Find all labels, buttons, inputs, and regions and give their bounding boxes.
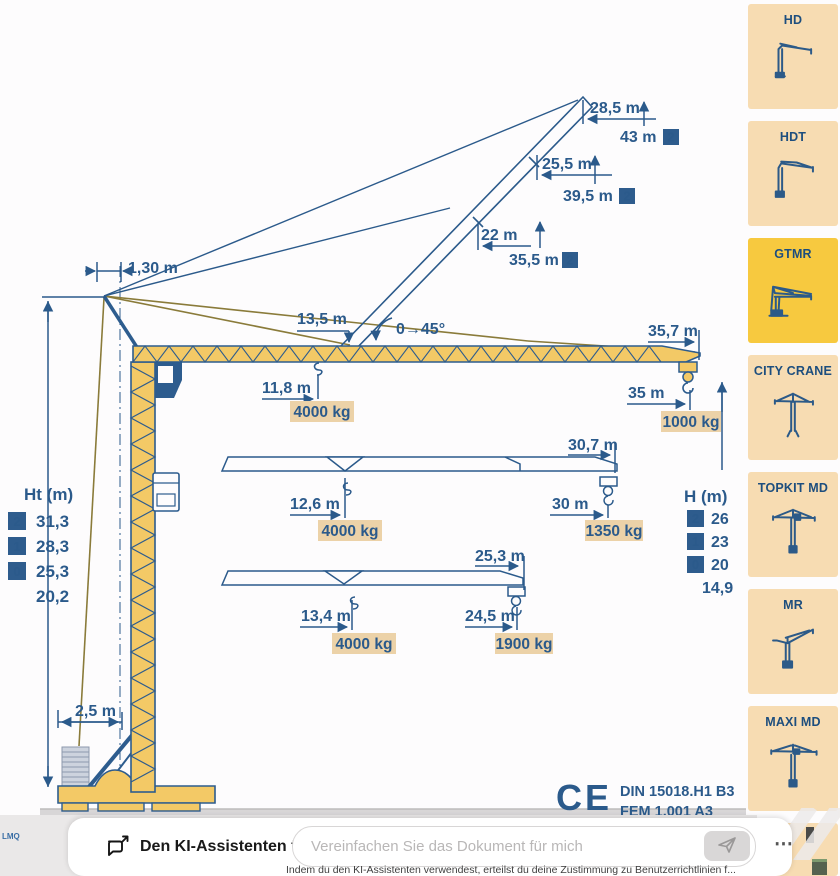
svg-text:2: 2 bbox=[566, 253, 573, 268]
load-4000-a: 4000 kg bbox=[294, 404, 351, 421]
svg-text:14,9: 14,9 bbox=[702, 580, 733, 597]
svg-text:H (m): H (m) bbox=[684, 487, 727, 506]
dim-tip-25-3: 25,3 m bbox=[475, 548, 525, 565]
page-edge-label: LMQ bbox=[2, 832, 20, 841]
sidebar-item-label: MAXI MD bbox=[748, 706, 838, 729]
ht-table: Ht (m) 2 31,3 1 28,3 0 25,3 20,2 bbox=[8, 485, 73, 606]
svg-text:2: 2 bbox=[692, 511, 699, 526]
svg-text:23: 23 bbox=[711, 534, 729, 551]
dim-jib-root: 13,5 m bbox=[297, 311, 347, 328]
dim-apex-offset: 1,30 m bbox=[128, 260, 178, 277]
raised-jib-45 bbox=[104, 97, 592, 355]
dim-radius-25-5: 25,5 m bbox=[542, 156, 592, 173]
dim-tip-30-7: 30,7 m bbox=[568, 437, 618, 454]
assistant-input-wrap bbox=[292, 826, 756, 867]
assistant-panel: Den KI-Assistenten fragen ⋯ Indem du den… bbox=[68, 818, 792, 876]
chat-assistant-icon bbox=[106, 835, 130, 859]
sidebar-item-mr[interactable]: MR bbox=[748, 589, 838, 694]
crane-icon-hdt bbox=[764, 148, 822, 206]
sidebar-item-city-crane[interactable]: CITY CRANE bbox=[748, 355, 838, 460]
dim-height-43: 43 m bbox=[620, 129, 656, 146]
sidebar-item-label: TOPKIT MD bbox=[748, 472, 838, 495]
svg-text:2: 2 bbox=[13, 514, 20, 529]
svg-text:0: 0 bbox=[13, 564, 20, 579]
svg-text:0: 0 bbox=[692, 557, 699, 572]
dim-radius-22: 22 m bbox=[481, 227, 517, 244]
dim-height-35-5: 35,5 m bbox=[509, 252, 559, 269]
document-viewer: 28,5 m 43 m 25,5 m 39,5 m 22 m 35,5 m 2 … bbox=[0, 0, 840, 876]
dim-hook-24-5: 24,5 m bbox=[465, 608, 515, 625]
load-1900: 1900 kg bbox=[496, 636, 553, 653]
sidebar-item-hdt[interactable]: HDT bbox=[748, 121, 838, 226]
more-options-button[interactable]: ⋯ bbox=[768, 832, 801, 857]
dim-slew-angle: 0→45° bbox=[396, 321, 445, 338]
svg-text:1: 1 bbox=[13, 539, 20, 554]
dim-trolley-12-6: 12,6 m bbox=[290, 496, 340, 513]
standard-din: DIN 15018.H1 B3 bbox=[620, 784, 734, 800]
crane-icon-topkit-md bbox=[764, 499, 822, 557]
crane-icon-city-crane bbox=[764, 382, 822, 440]
load-4000-b: 4000 kg bbox=[322, 523, 379, 540]
sidebar-item-maxi-md[interactable]: MAXI MD bbox=[748, 706, 838, 811]
sidebar-item-label: MR bbox=[748, 589, 838, 612]
tower-cab bbox=[155, 362, 182, 398]
svg-text:31,3: 31,3 bbox=[36, 512, 69, 531]
assistant-disclaimer: Indem du den KI-Assistenten verwendest, … bbox=[286, 864, 736, 876]
crane-icon-hd bbox=[764, 31, 822, 89]
crane-icon-maxi-md bbox=[764, 733, 822, 791]
sidebar-item-label: HD bbox=[748, 4, 838, 27]
dim-trolley-11-8: 11,8 m bbox=[262, 380, 311, 397]
assistant-input[interactable] bbox=[309, 829, 683, 863]
crane-load-diagram: 28,5 m 43 m 25,5 m 39,5 m 22 m 35,5 m 2 … bbox=[0, 0, 748, 818]
load-1350: 1350 kg bbox=[586, 523, 643, 540]
h-table: H (m) 2 26 1 23 0 20 14,9 bbox=[684, 487, 733, 597]
dim-hook-35: 35 m bbox=[628, 385, 664, 402]
svg-text:25,3: 25,3 bbox=[36, 562, 69, 581]
svg-text:26: 26 bbox=[711, 511, 729, 528]
svg-text:20: 20 bbox=[711, 557, 729, 574]
dim-trolley-13-4: 13,4 m bbox=[301, 608, 351, 625]
dim-radius-28-5: 28,5 m bbox=[590, 100, 640, 117]
dim-height-39-5: 39,5 m bbox=[563, 188, 613, 205]
svg-text:2: 2 bbox=[623, 189, 630, 204]
send-button[interactable] bbox=[704, 831, 750, 861]
tower-cabinet bbox=[153, 473, 179, 511]
svg-text:Ht (m): Ht (m) bbox=[24, 485, 73, 504]
crane-icon-gtmr bbox=[764, 265, 822, 323]
sidebar-item-label: CITY CRANE bbox=[748, 355, 838, 378]
load-1000: 1000 kg bbox=[663, 414, 720, 431]
dim-hook-30: 30 m bbox=[552, 496, 588, 513]
ce-mark: CE bbox=[556, 777, 612, 818]
trolley-hook-glyph bbox=[315, 363, 322, 375]
main-jib bbox=[133, 346, 700, 362]
sidebar-item-hd[interactable]: HD bbox=[748, 4, 838, 109]
svg-text:2: 2 bbox=[667, 130, 674, 145]
svg-text:1: 1 bbox=[692, 534, 699, 549]
sidebar-item-gtmr[interactable]: GTMR bbox=[748, 238, 838, 343]
paper-plane-icon bbox=[717, 837, 737, 853]
corner-mark bbox=[812, 859, 827, 875]
crane-type-sidebar: HD HDT GTMR CITY CRANE bbox=[748, 0, 840, 876]
crane-icon-mr bbox=[764, 616, 822, 674]
dim-tip-35-7: 35,7 m bbox=[648, 323, 698, 340]
dim-base-width: 2,5 m bbox=[75, 703, 116, 720]
load-4000-c: 4000 kg bbox=[336, 636, 393, 653]
sidebar-item-label: GTMR bbox=[748, 238, 838, 261]
sidebar-item-topkit-md[interactable]: TOPKIT MD bbox=[748, 472, 838, 577]
svg-text:28,3: 28,3 bbox=[36, 537, 69, 556]
sidebar-item-label: HDT bbox=[748, 121, 838, 144]
jib-tip-hook bbox=[679, 362, 697, 393]
svg-text:20,2: 20,2 bbox=[36, 587, 69, 606]
partial-card-mark bbox=[806, 827, 814, 843]
